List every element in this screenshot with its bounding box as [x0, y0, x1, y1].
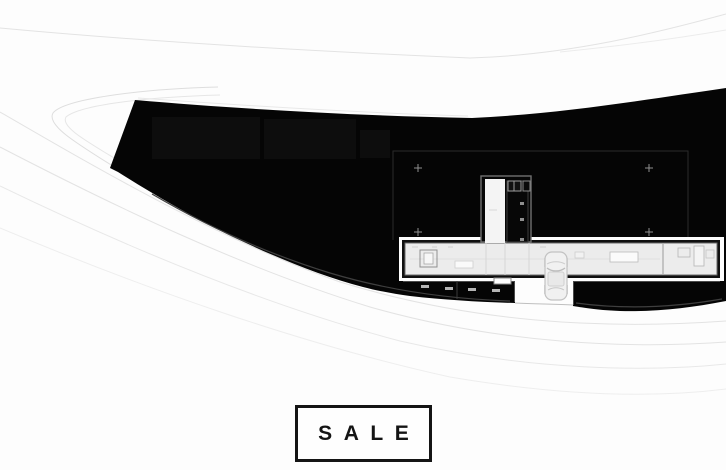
- roof-panels: [152, 117, 390, 159]
- site-plan-canvas: SALE: [0, 0, 726, 470]
- sale-badge: SALE: [295, 405, 432, 462]
- vertical-wing: [481, 176, 531, 243]
- car-top-view-icon: [544, 252, 568, 300]
- entry-landing: [494, 278, 511, 284]
- site-plan-drawing: [0, 0, 726, 470]
- sale-badge-label: SALE: [307, 423, 421, 444]
